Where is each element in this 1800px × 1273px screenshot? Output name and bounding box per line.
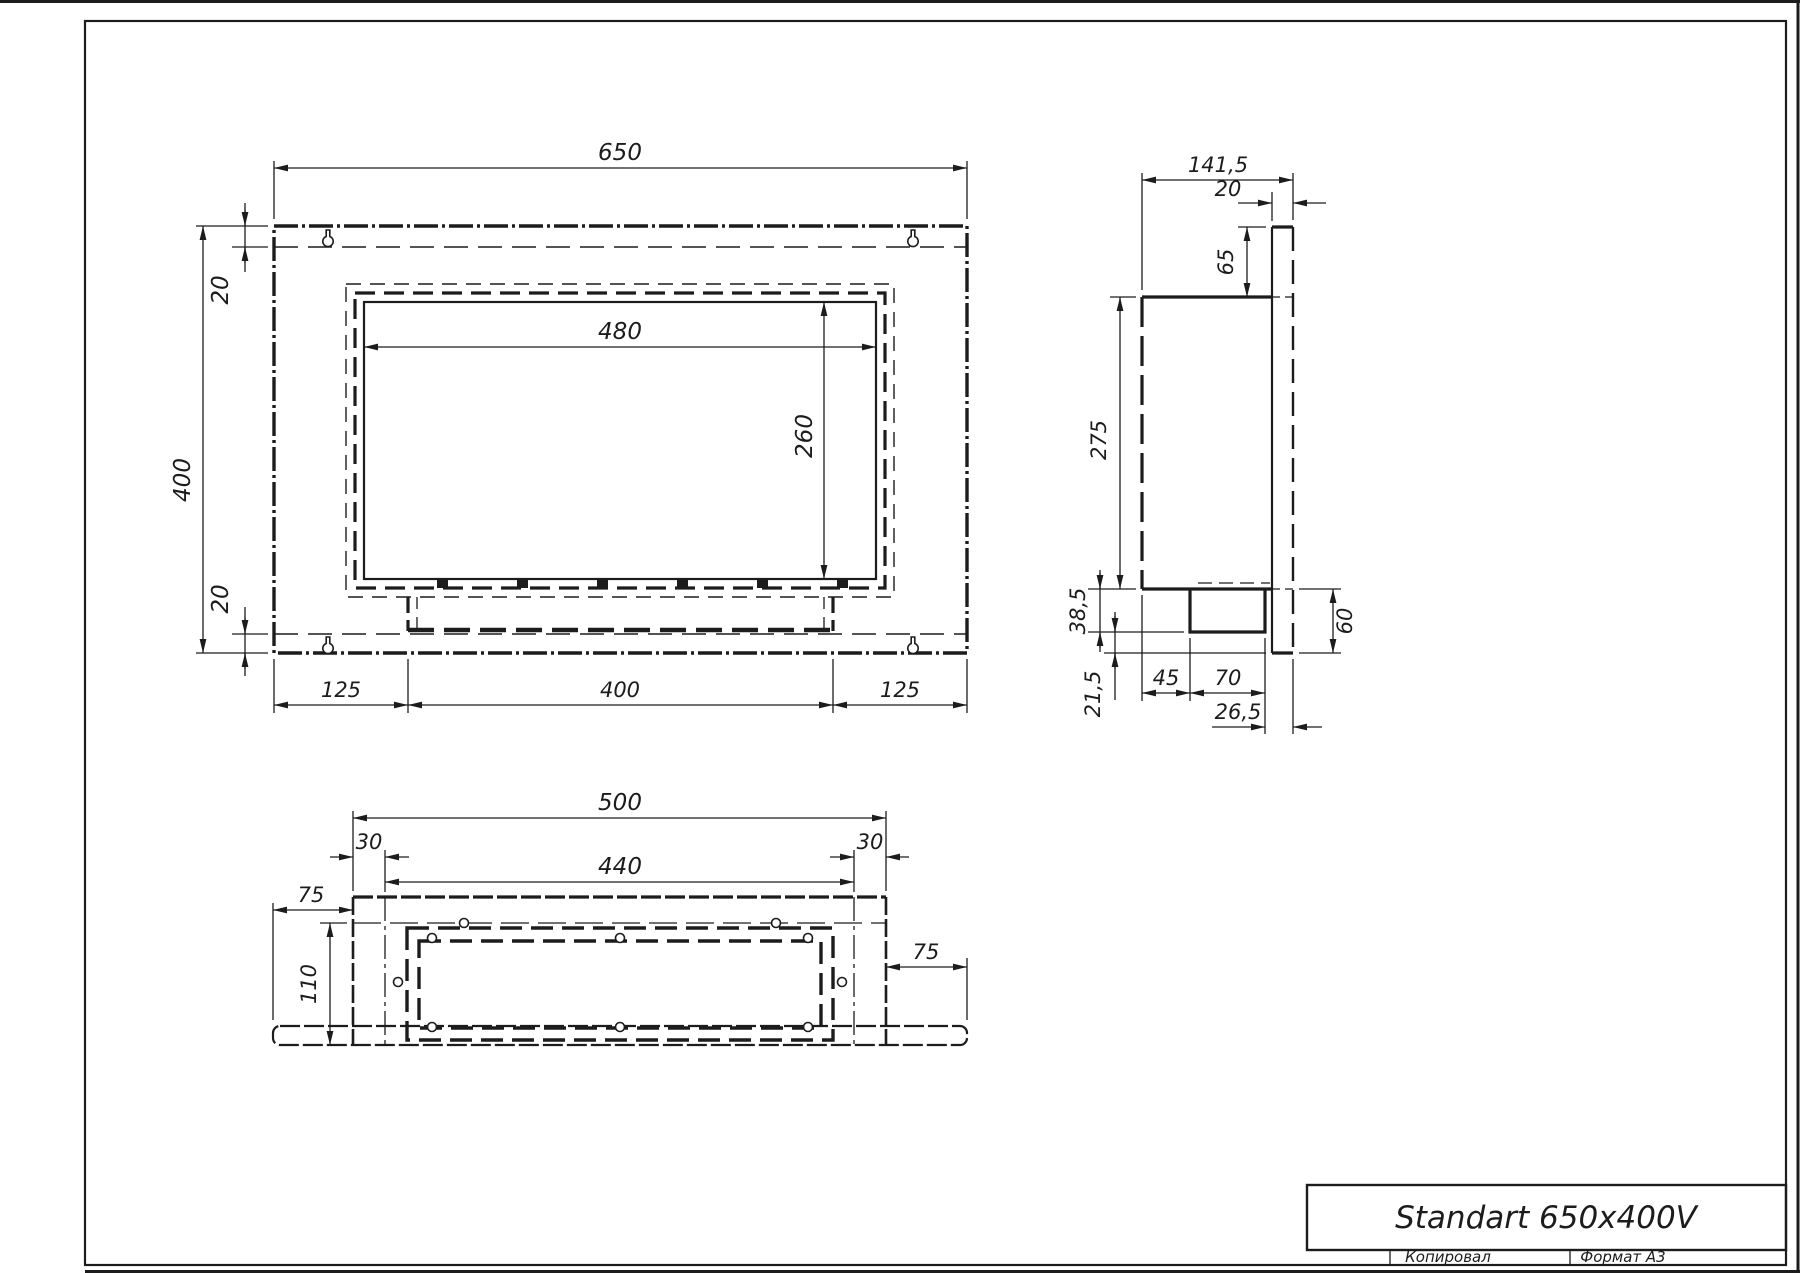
bottom-view: 500 30 30 440 75 1 <box>273 790 967 1045</box>
keyhole-icon <box>323 230 333 247</box>
dim-label-260: 260 <box>792 414 818 458</box>
dim-30-left: 30 <box>330 830 409 892</box>
dim-label-275: 275 <box>1087 420 1111 460</box>
dim-label-141-5: 141,5 <box>1188 153 1248 177</box>
dim-label-70: 70 <box>1215 666 1242 690</box>
copied-label: Копировал <box>1405 1248 1491 1266</box>
burner-tray-side <box>1190 589 1265 632</box>
dim-440: 440 <box>385 854 854 882</box>
dim-label-65: 65 <box>1214 249 1238 276</box>
dim-bottom-row: 125 400 125 <box>274 659 967 713</box>
dim-label-125-right: 125 <box>880 678 920 702</box>
format-label: Формат А3 <box>1580 1248 1665 1266</box>
dim-650: 650 <box>274 140 967 219</box>
keyhole-icon <box>908 230 918 247</box>
dim-label-500: 500 <box>598 790 642 816</box>
engineering-drawing: 650 400 20 20 480 <box>0 0 1800 1273</box>
dim-label-480: 480 <box>598 319 642 345</box>
keyhole-icon <box>323 637 333 654</box>
dim-label-400-bottom: 400 <box>600 678 640 702</box>
dim-75-right: 75 <box>886 940 967 1020</box>
dim-label-20-bottom: 20 <box>208 584 234 613</box>
burner-hidden-front <box>408 597 833 631</box>
dim-60: 60 <box>1299 589 1357 653</box>
dim-label-125-left: 125 <box>321 678 361 702</box>
dim-label-75-right: 75 <box>913 940 940 964</box>
title-block: Standart 650x400V Копировал Формат А3 <box>1307 1185 1786 1266</box>
page-frame <box>0 0 1800 1273</box>
dim-label-440: 440 <box>598 854 642 880</box>
dim-label-45: 45 <box>1153 666 1180 690</box>
dim-label-38-5: 38,5 <box>1066 588 1090 635</box>
dim-label-110: 110 <box>297 964 321 1004</box>
model-name: Standart 650x400V <box>1395 1200 1700 1236</box>
vent-notches <box>437 580 848 588</box>
dim-label-20-flange: 20 <box>1215 177 1242 201</box>
dim-480: 480 <box>364 319 876 347</box>
dim-label-75-left: 75 <box>298 883 325 907</box>
dim-20-top: 20 <box>208 203 268 305</box>
dim-label-30-right: 30 <box>857 830 884 854</box>
dim-label-60: 60 <box>1333 608 1357 635</box>
dim-label-30-left: 30 <box>356 830 383 854</box>
dim-260: 260 <box>792 302 824 579</box>
screw-holes <box>394 919 847 1032</box>
dim-label-20-top: 20 <box>208 275 234 304</box>
drawing-page: 650 400 20 20 480 <box>0 0 1800 1273</box>
dim-30-right: 30 <box>830 830 909 892</box>
keyhole-icon <box>908 637 918 654</box>
dim-label-26-5: 26,5 <box>1215 700 1262 724</box>
dim-20-flange: 20 <box>1215 177 1326 221</box>
dim-20-bottom: 20 <box>208 584 268 676</box>
burner-opening-inner <box>419 941 821 1028</box>
dim-38-5: 38,5 <box>1066 570 1184 652</box>
side-view: 141,5 20 65 275 38,5 <box>1066 153 1357 734</box>
dim-label-21-5: 21,5 <box>1081 671 1105 718</box>
front-view: 650 400 20 20 480 <box>170 140 967 713</box>
dim-label-650: 650 <box>598 140 642 166</box>
dim-65: 65 <box>1214 227 1266 297</box>
dim-275: 275 <box>1087 297 1136 589</box>
dim-label-400-height: 400 <box>170 458 196 502</box>
